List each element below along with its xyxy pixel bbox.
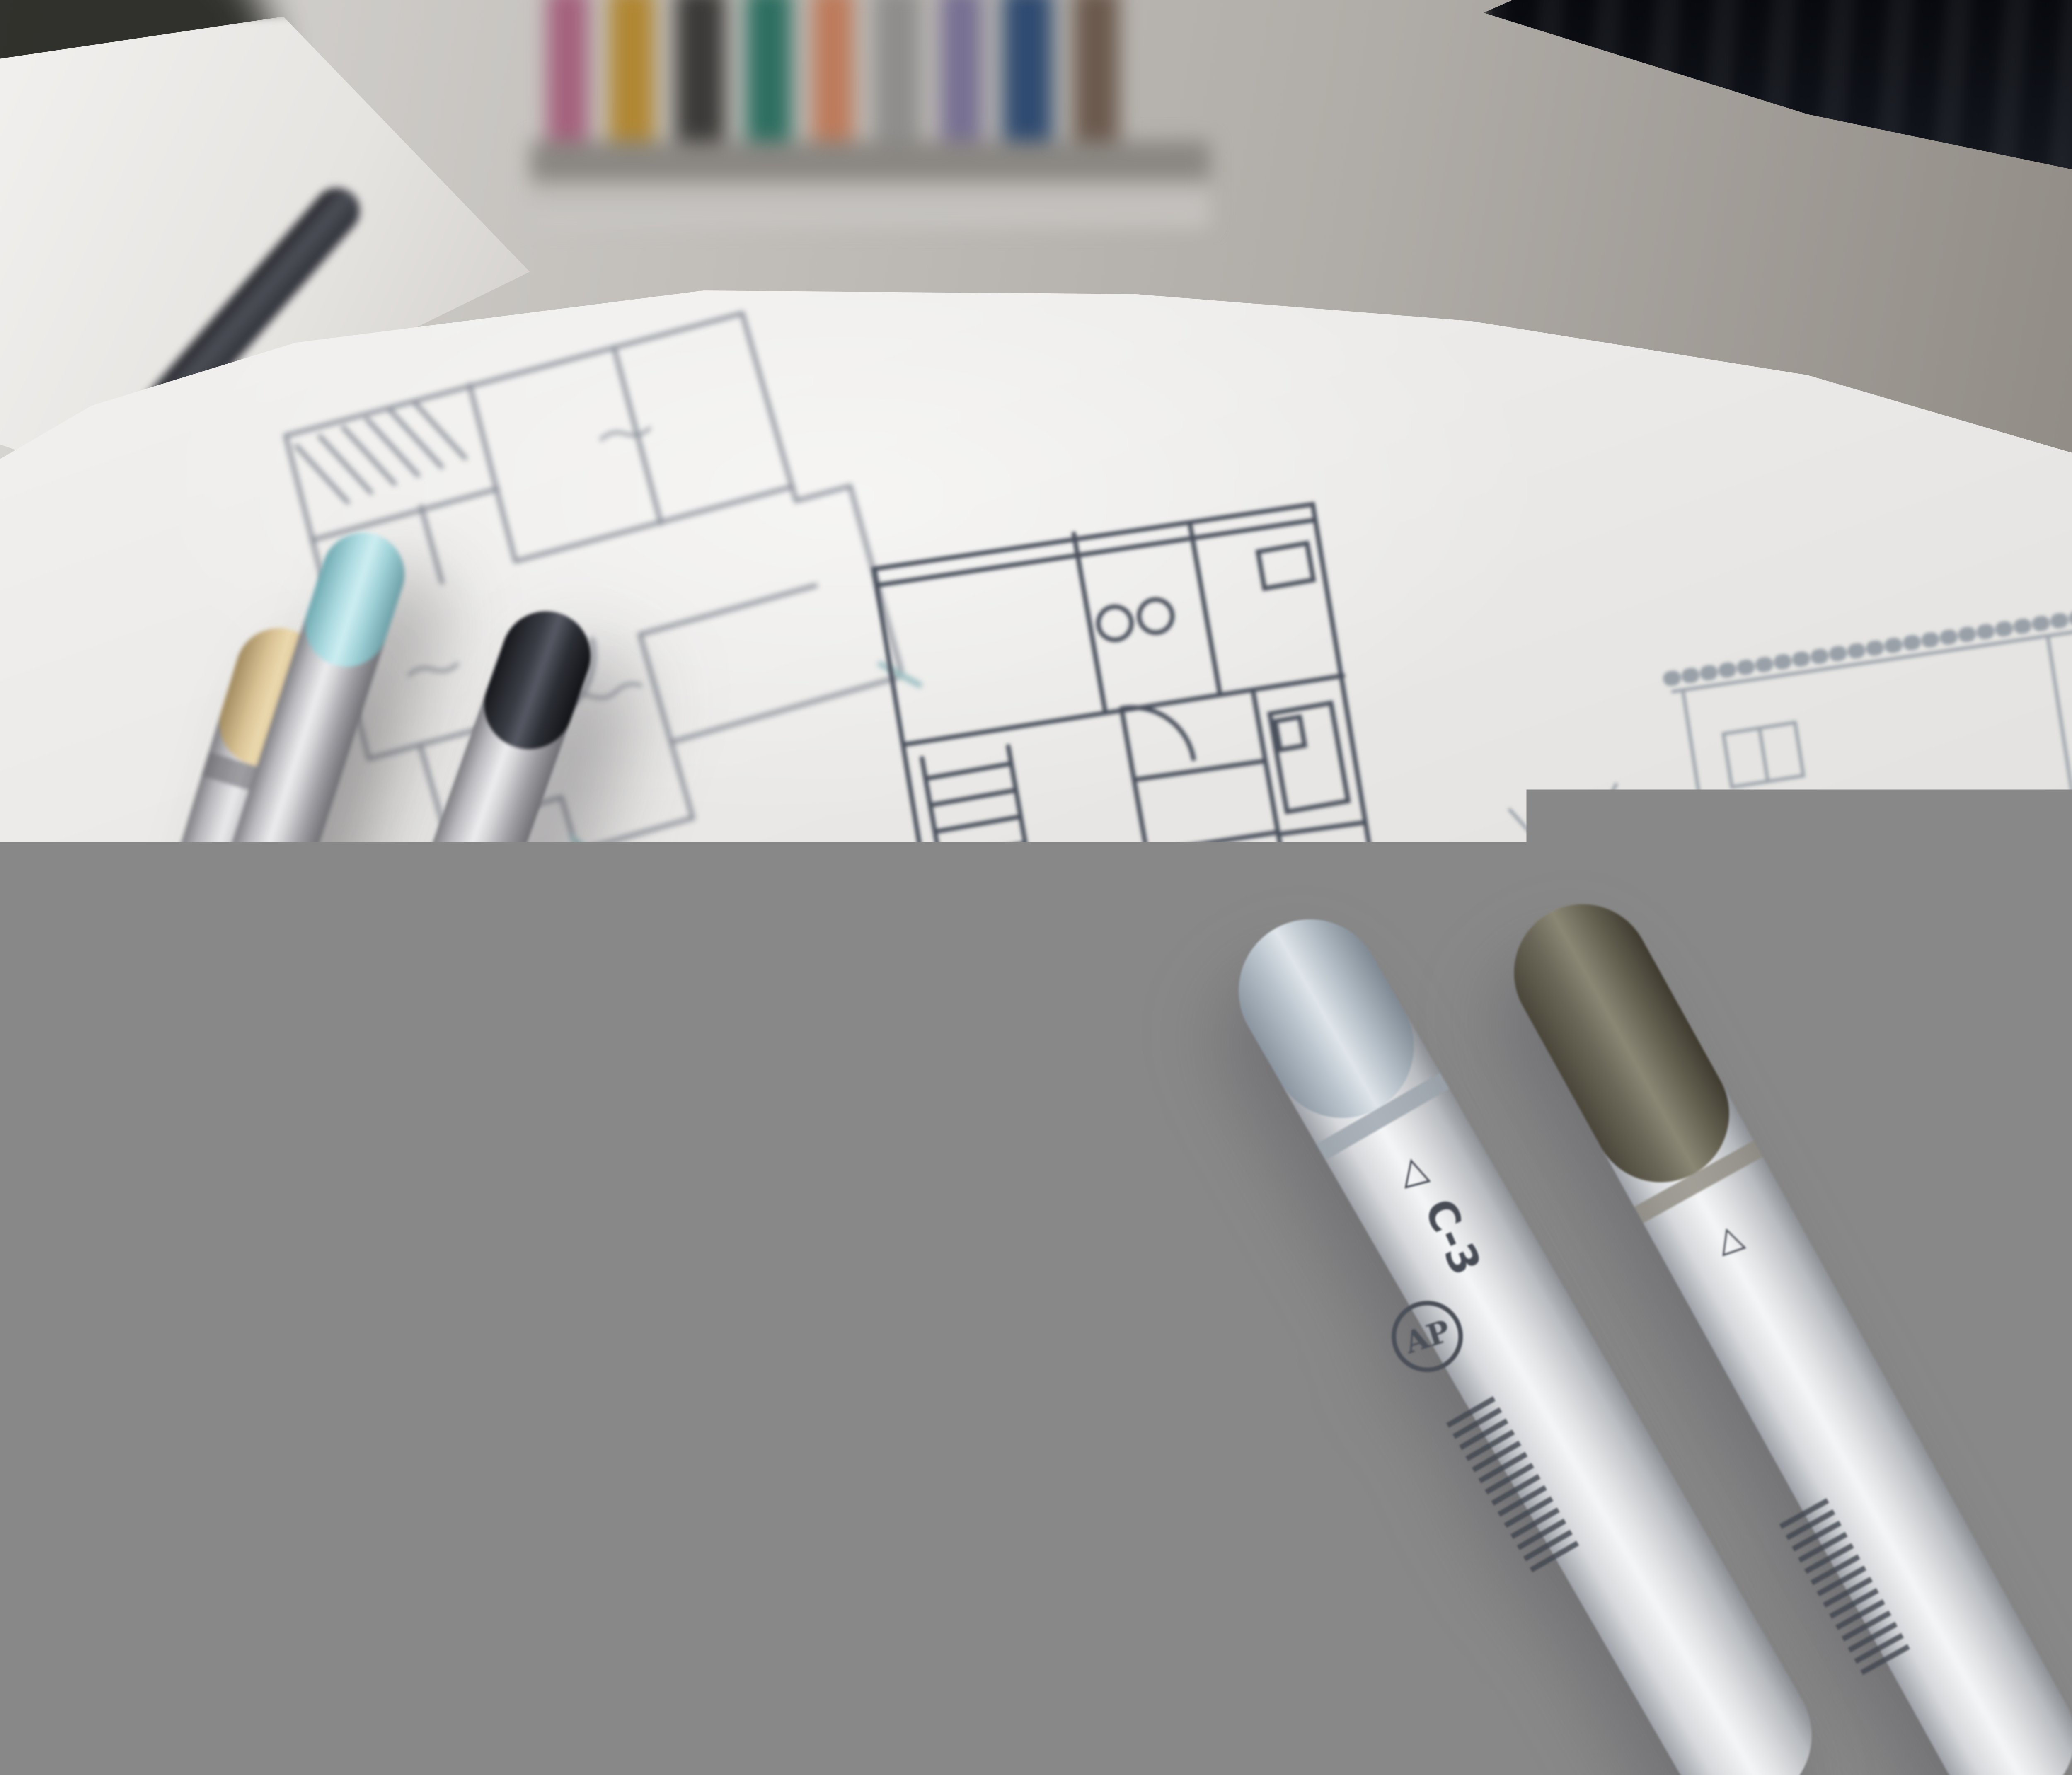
window [1723,723,1803,787]
gate [1934,864,2009,935]
sketches-layer [0,0,2072,1775]
desk-photo: a’s House MADE IN JAPAN △ C-3 AP [0,0,2072,1775]
squiggle-line [1270,1481,1522,1629]
door [1804,829,1910,954]
bed [1270,703,1348,812]
